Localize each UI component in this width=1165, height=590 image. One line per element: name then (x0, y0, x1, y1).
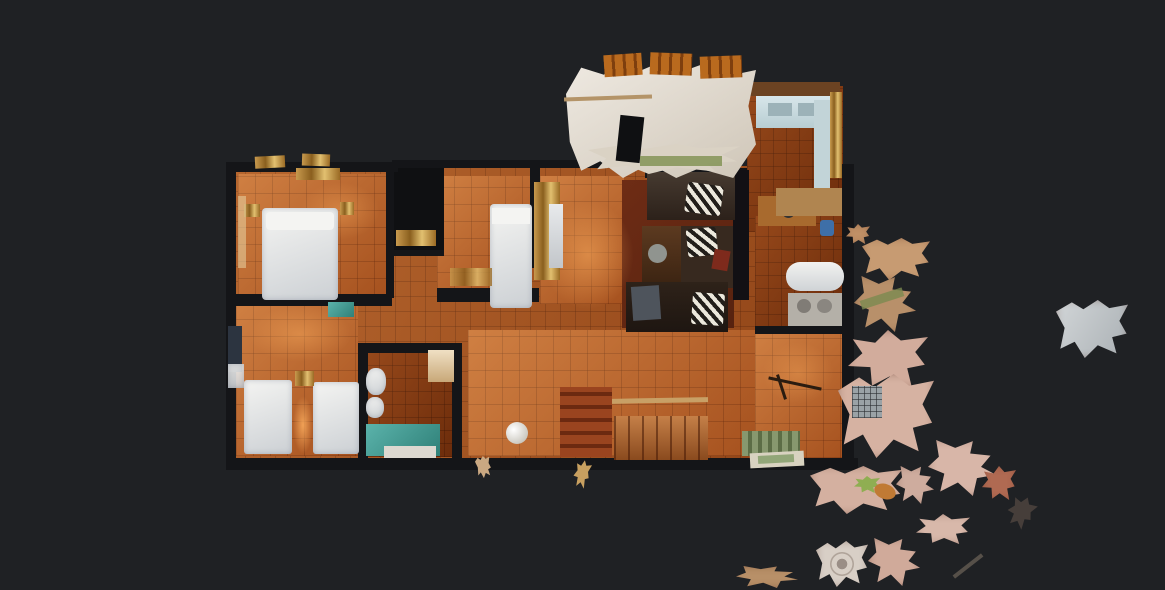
gray-dresser (788, 293, 842, 326)
scan-fragment-bottom-tan (736, 566, 798, 588)
kitchen-gold-wall (830, 92, 842, 178)
sofa-cushion-zigzag-c (691, 292, 725, 326)
wall-closet-bottom (392, 250, 444, 256)
nightstand-bottomleft (295, 371, 314, 386)
dresser-knob-b (817, 299, 832, 313)
scan-fragment-j (916, 514, 970, 544)
nightstand-topleft-b (340, 202, 354, 215)
bench-topmid (450, 268, 492, 286)
staircase (614, 416, 708, 460)
floorplan-scene (0, 0, 1165, 590)
round-tray (648, 244, 667, 263)
toilet (366, 368, 386, 395)
hall-fridge (549, 204, 563, 268)
scan-fragment-grid-rug (852, 386, 882, 418)
wall-left (226, 162, 236, 464)
closet-shelf (396, 230, 436, 246)
roof-tile-b (650, 52, 693, 75)
kitchen-counter-right (814, 100, 830, 198)
wardrobe-above-wall-a (255, 155, 286, 169)
kitchen-top-cabinet (748, 82, 840, 96)
bed-topmid-pillow (492, 208, 530, 224)
scan-fragment-l (868, 538, 920, 586)
scan-fragment-f (928, 440, 996, 496)
shower-tray (384, 446, 436, 458)
bidet (366, 397, 384, 418)
scan-fragment-b (862, 238, 930, 280)
roof-tile-c (700, 55, 743, 78)
red-armchair (560, 387, 612, 457)
roof-tile-a (603, 53, 642, 78)
teal-bench-bottomleft (328, 302, 354, 317)
window-light-topleft (238, 196, 246, 268)
wall-bath-right-divider (755, 326, 843, 334)
wardrobe-above-wall-b (302, 154, 330, 167)
bed-bottomleft-b (313, 382, 359, 454)
blue-bucket (820, 220, 834, 236)
dining-glow (762, 342, 834, 404)
bathroom-mirror-glow (428, 350, 454, 382)
kitchen-sink-a (768, 103, 792, 116)
scan-fragment-k-swirl (830, 552, 854, 576)
scan-fragment-far-right-gray (1056, 300, 1128, 358)
tv-wall (733, 170, 749, 300)
nightstand-topleft-a (244, 204, 260, 217)
bath-right-counter (776, 188, 842, 216)
bathtub (786, 262, 844, 291)
dresser-topleft (296, 168, 340, 180)
scan-fragment-i (896, 466, 934, 504)
red-cushion (711, 249, 730, 271)
lamp-glow-bottomleft (293, 396, 313, 454)
terrace-plant-strip (640, 156, 722, 166)
white-edge-bottomleft (228, 364, 244, 388)
dresser-knob-a (797, 299, 811, 313)
bed-topleft-pillow (266, 212, 334, 230)
scan-fragment-dark-line (953, 553, 984, 578)
bed-bottomleft-a (244, 380, 292, 454)
sofa-cushion-zigzag-a (684, 182, 724, 217)
gray-cushion (631, 285, 661, 321)
white-sphere-lamp (506, 422, 528, 444)
wall-bedroom-topleft-right (386, 166, 394, 298)
dollhouse-floorplan-viewport[interactable] (0, 0, 1165, 590)
